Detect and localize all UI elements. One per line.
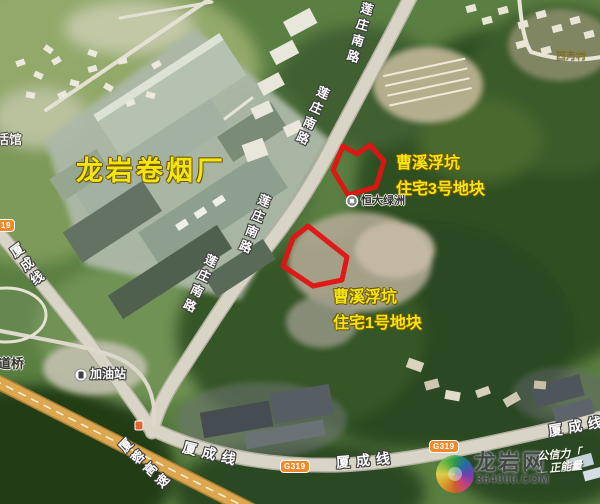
poi-label-bridge: 道桥 <box>0 357 24 372</box>
watermark-site-name: 龙岩网 <box>474 450 546 475</box>
plot1-label-line1: 曹溪浮坑 <box>333 285 422 311</box>
satellite-map: 活馆 龙岩卷烟厂 曹溪浮坑 住宅3号地块 曹溪浮坑 住宅1号地块 莲庄南路 莲庄… <box>0 0 600 504</box>
g319-badge-clipped: 19 <box>0 219 15 232</box>
g319-badge-2: G319 <box>429 440 459 453</box>
hengda-poi-icon <box>347 196 358 207</box>
watermark-logo <box>436 455 474 493</box>
watermark-slogan: 公信力「 ∟正能量 <box>537 447 583 477</box>
plot3-label: 曹溪浮坑 住宅3号地块 <box>396 151 485 203</box>
gas-station-icon <box>75 369 87 381</box>
g319-badge-1: G319 <box>280 460 310 473</box>
plot1-label-line2: 住宅1号地块 <box>333 311 422 337</box>
poi-label-hengda-oasis: 恒大绿洲 <box>361 195 405 208</box>
poi-label-living-hall: 活馆 <box>0 133 22 148</box>
plot1-label: 曹溪浮坑 住宅1号地块 <box>333 285 422 337</box>
poi-label-gas-station: 加油站 <box>90 368 126 382</box>
plot3-label-line2: 住宅3号地块 <box>396 177 485 203</box>
intersection-marker-icon <box>135 421 143 430</box>
plot3-label-line1: 曹溪浮坑 <box>396 151 485 177</box>
satellite-basemap <box>0 0 600 504</box>
factory-label: 龙岩卷烟厂 <box>76 156 226 187</box>
poi-label-village: 西月村 <box>556 51 586 63</box>
